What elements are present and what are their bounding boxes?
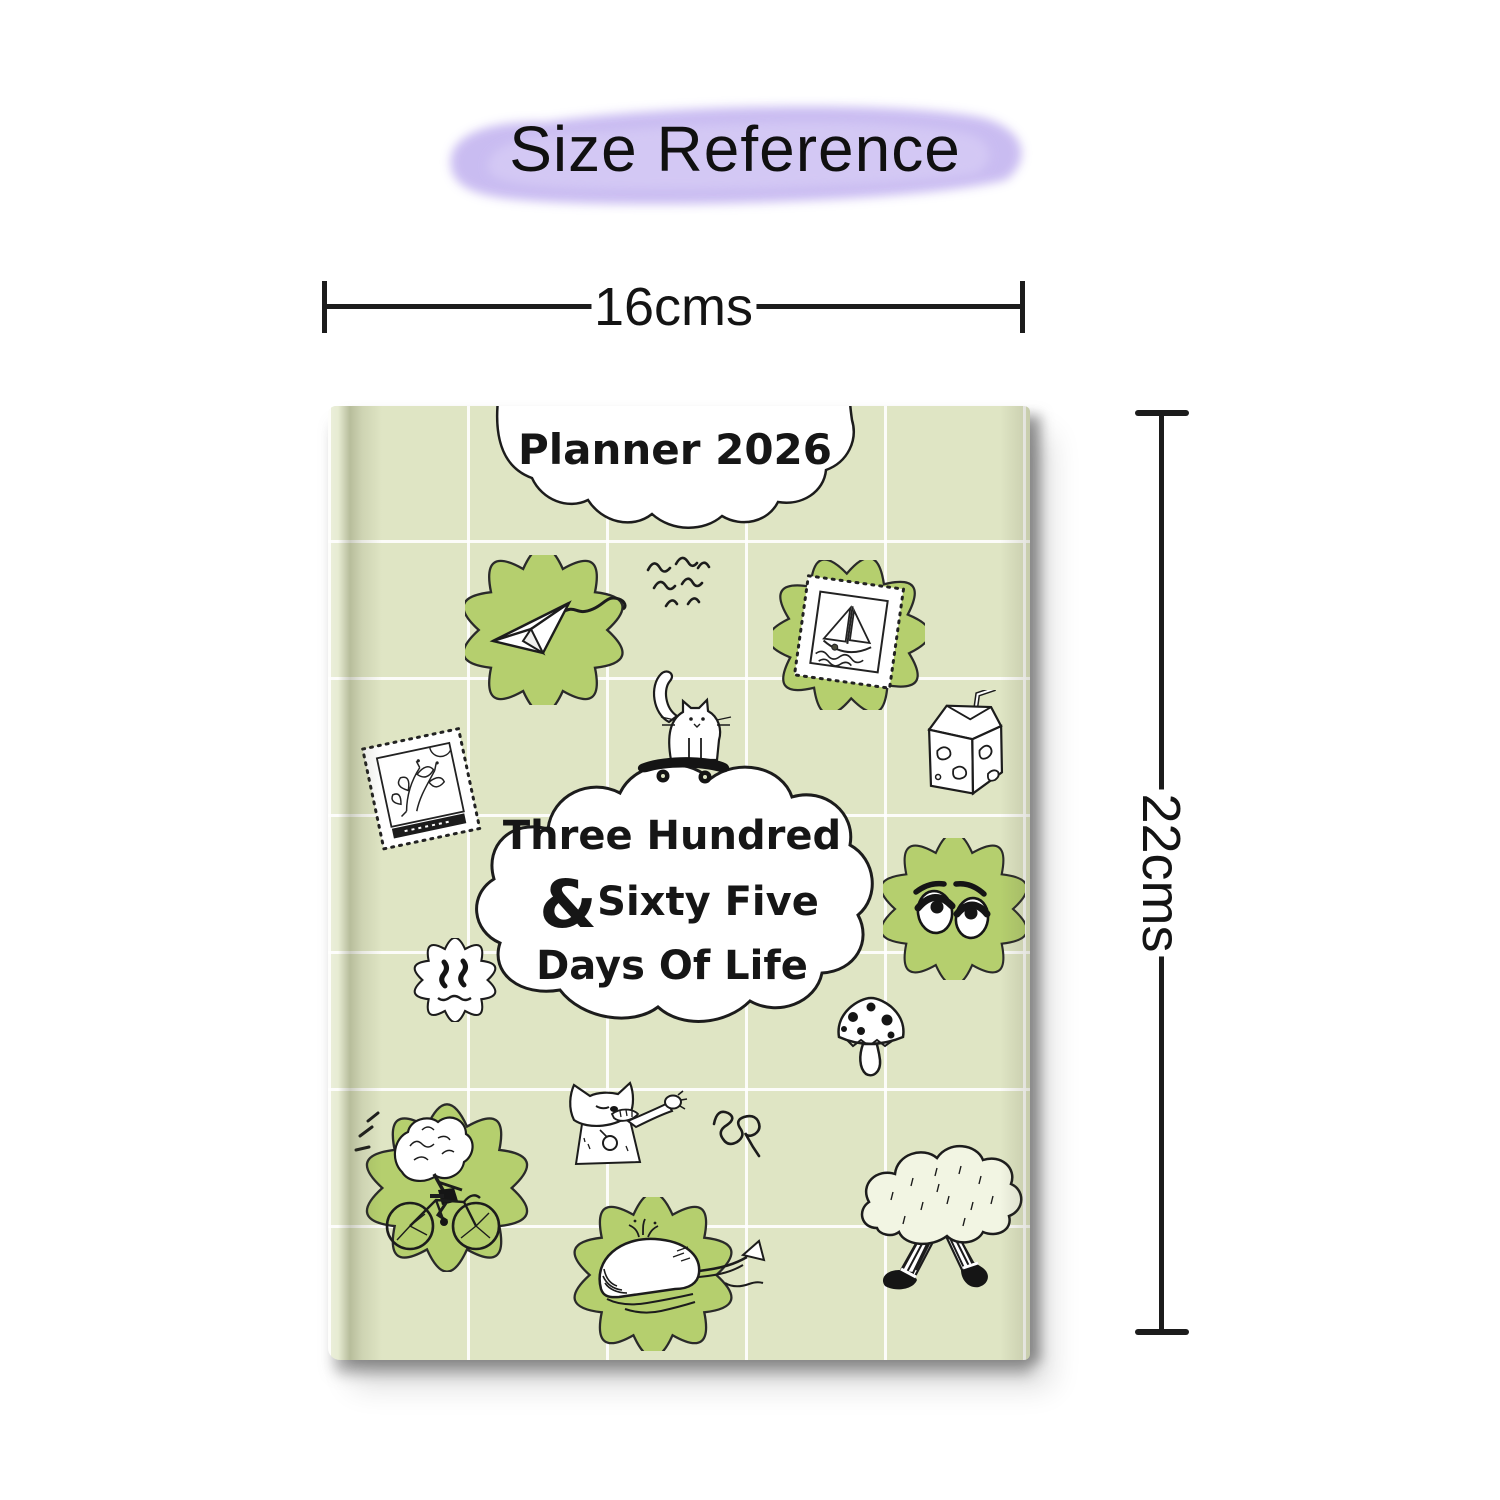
sailboat-stamp-doodle bbox=[773, 560, 925, 710]
width-dimension-left-cap bbox=[322, 281, 327, 333]
width-dimension-label: 16cms bbox=[591, 276, 756, 338]
melting-smiley-doodle bbox=[413, 938, 497, 1022]
title-cloud: Planner 2026 bbox=[480, 406, 870, 538]
slogan-cloud: Three Hundred & Sixty Five Days Of Life bbox=[460, 745, 885, 1045]
book-spine bbox=[328, 406, 382, 1360]
flying-birds-doodle bbox=[640, 552, 718, 624]
height-dimension: 22cms bbox=[1134, 410, 1190, 1335]
mushroom-doodle bbox=[833, 993, 913, 1083]
height-dimension-top-cap bbox=[1135, 410, 1189, 416]
cat-on-skateboard-doodle bbox=[633, 662, 735, 786]
slogan-ampersand: & bbox=[539, 866, 597, 943]
dabbing-cat-doodle bbox=[560, 1080, 688, 1168]
height-dimension-label: 22cms bbox=[1130, 789, 1192, 956]
paper-plane-doodle bbox=[465, 555, 660, 705]
page-title: Size Reference bbox=[435, 112, 1035, 186]
whale-doodle bbox=[573, 1197, 811, 1351]
spiral-squiggle-doodle bbox=[708, 1098, 788, 1172]
page: { "page": { "title": "Size Reference" },… bbox=[0, 0, 1500, 1500]
slogan-line2: Sixty Five bbox=[597, 879, 819, 925]
book-right-edge-shade bbox=[1000, 406, 1030, 1360]
width-dimension-right-cap bbox=[1020, 281, 1025, 333]
planner-title-text: Planner 2026 bbox=[518, 425, 832, 474]
slogan-line1: Three Hundred bbox=[503, 813, 841, 859]
width-dimension: 16cms bbox=[322, 281, 1025, 333]
slogan-line3: Days Of Life bbox=[536, 943, 808, 989]
height-dimension-bottom-cap bbox=[1135, 1329, 1189, 1335]
size-reference-header: Size Reference bbox=[0, 0, 1500, 260]
planner-book-cover: Planner 2026 bbox=[328, 406, 1030, 1360]
